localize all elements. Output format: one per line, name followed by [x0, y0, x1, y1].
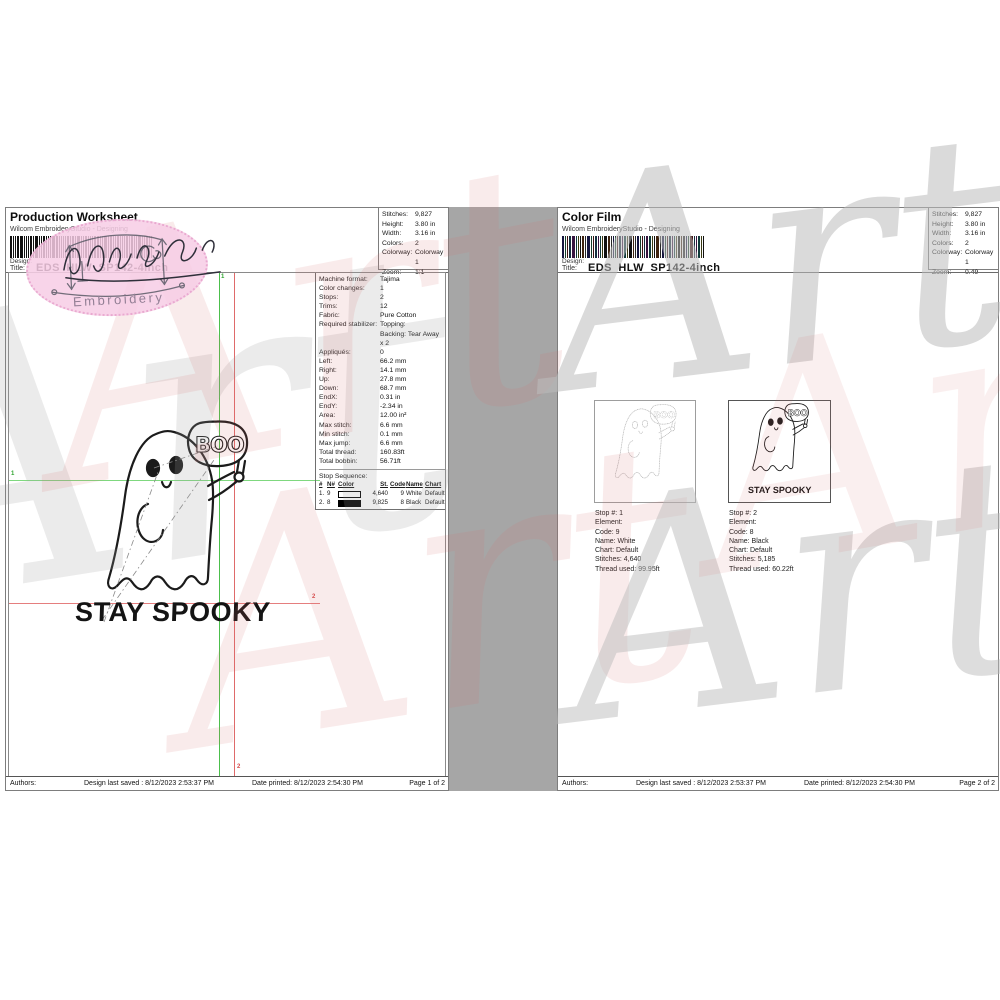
page-title: Production Worksheet [10, 210, 138, 224]
film-frame-stop2: STAY SPOOKY [728, 400, 831, 503]
app-subtitle: Wilcom EmbroideryStudio - Designing [10, 226, 128, 233]
footer-authors: Authors: [562, 780, 588, 787]
design-stats: Stitches:9,827 Height:3.80 in Width:3.16… [928, 208, 998, 270]
info-row: Required stabilizer:Topping: Backing: Te… [319, 320, 445, 347]
footer-printed: Date printed: 8/12/2023 2:54:30 PM [252, 780, 363, 787]
footer-printed: Date printed: 8/12/2023 2:54:30 PM [804, 780, 915, 787]
page-footer: Authors: Design last saved : 8/12/2023 2… [6, 776, 448, 790]
info-row: EndX:0.31 in [319, 393, 445, 402]
info-row: Left:66.2 mm [319, 357, 445, 366]
design-caption-text: STAY SPOOKY [74, 597, 265, 628]
footer-authors: Authors: [10, 780, 36, 787]
print-preview-canvas: Production Worksheet Wilcom EmbroiderySt… [0, 0, 1000, 1000]
app-subtitle: Wilcom EmbroideryStudio - Designing [562, 226, 680, 233]
info-row: Appliqués:0 [319, 348, 445, 357]
start-marker: 1 [221, 274, 224, 280]
stat-row: Width:3.16 in [932, 229, 998, 239]
stat-row: Colors:2 [382, 239, 448, 249]
start-marker: 1 [11, 471, 14, 477]
design-info-panel: Machine format:Tajima Color changes:1 St… [315, 273, 445, 510]
end-marker: 2 [312, 594, 315, 600]
design-preview-area: 1 1 2 2 STAY SPOOKY Machine format:Tajim… [8, 272, 446, 777]
footer-page-number: Page 1 of 2 [409, 780, 445, 787]
design-barcode-color [562, 236, 716, 258]
footer-saved: Design last saved : 8/12/2023 2:53:37 PM [84, 780, 214, 787]
stat-row: Height:3.80 in [382, 220, 448, 230]
stat-row: Colorway:Colorway 1 [382, 248, 448, 267]
info-row: Total thread:160.83ft [319, 448, 445, 457]
design-barcode [10, 236, 164, 258]
page-production-worksheet: Production Worksheet Wilcom EmbroiderySt… [5, 207, 449, 791]
info-row: Total bobbin:56.71ft [319, 457, 445, 466]
info-row: Fabric:Pure Cotton [319, 311, 445, 320]
info-row: Color changes:1 [319, 284, 445, 293]
page-gap [449, 207, 557, 791]
design-caption-text: STAY SPOOKY [748, 485, 812, 495]
info-row: Max stitch:6.6 mm [319, 421, 445, 430]
ghost-stitches-black [748, 403, 812, 489]
title-label: Title: [562, 265, 577, 272]
page-title: Color Film [562, 210, 621, 224]
info-row: Area:12.00 in² [319, 411, 445, 420]
design-stats: Stitches:9,827 Height:3.80 in Width:3.16… [378, 208, 448, 270]
info-row: Right:14.1 mm [319, 366, 445, 375]
thread-color-swatch [338, 500, 361, 507]
info-row: Stops:2 [319, 293, 445, 302]
info-row: Machine format:Tajima [319, 275, 445, 284]
title-label: Title: [10, 265, 25, 272]
info-row: Down:68.7 mm [319, 384, 445, 393]
color-film-area: STAY SPOOKY Stop #: 1 Element: Code: 9 N… [558, 272, 998, 777]
footer-saved: Design last saved : 8/12/2023 2:53:37 PM [636, 780, 766, 787]
stat-row: Stitches:9,827 [382, 210, 448, 220]
info-row: EndY:-2.34 in [319, 402, 445, 411]
stop-sequence-title: Stop Sequence: [319, 469, 445, 481]
info-row: Min stitch:0.1 mm [319, 430, 445, 439]
stop-sequence-table: # N# Color St. Code Name Chart 1. 9 4,64… [319, 481, 445, 507]
info-row: Trims:12 [319, 302, 445, 311]
ghost-stitches-white [610, 404, 680, 498]
thread-color-swatch [338, 491, 361, 498]
stat-row: Colorway:Colorway 1 [932, 248, 998, 267]
info-row: Max jump:6.6 mm [319, 439, 445, 448]
stat-row: Stitches:9,827 [932, 210, 998, 220]
stat-row: Colors:2 [932, 239, 998, 249]
end-marker: 2 [237, 764, 240, 770]
film-frame-stop1 [594, 400, 696, 503]
stat-row: Width:3.16 in [382, 229, 448, 239]
page-footer: Authors: Design last saved : 8/12/2023 2… [558, 776, 998, 790]
page-color-film: Color Film Wilcom EmbroideryStudio - Des… [557, 207, 999, 791]
footer-page-number: Page 2 of 2 [959, 780, 995, 787]
info-row: Up:27.8 mm [319, 375, 445, 384]
stat-row: Height:3.80 in [932, 220, 998, 230]
design-label: Design: [10, 258, 32, 265]
film-caption-stop1: Stop #: 1 Element: Code: 9 Name: White C… [595, 509, 660, 574]
film-caption-stop2: Stop #: 2 Element: Code: 8 Name: Black C… [729, 509, 794, 574]
design-label: Design: [562, 258, 584, 265]
